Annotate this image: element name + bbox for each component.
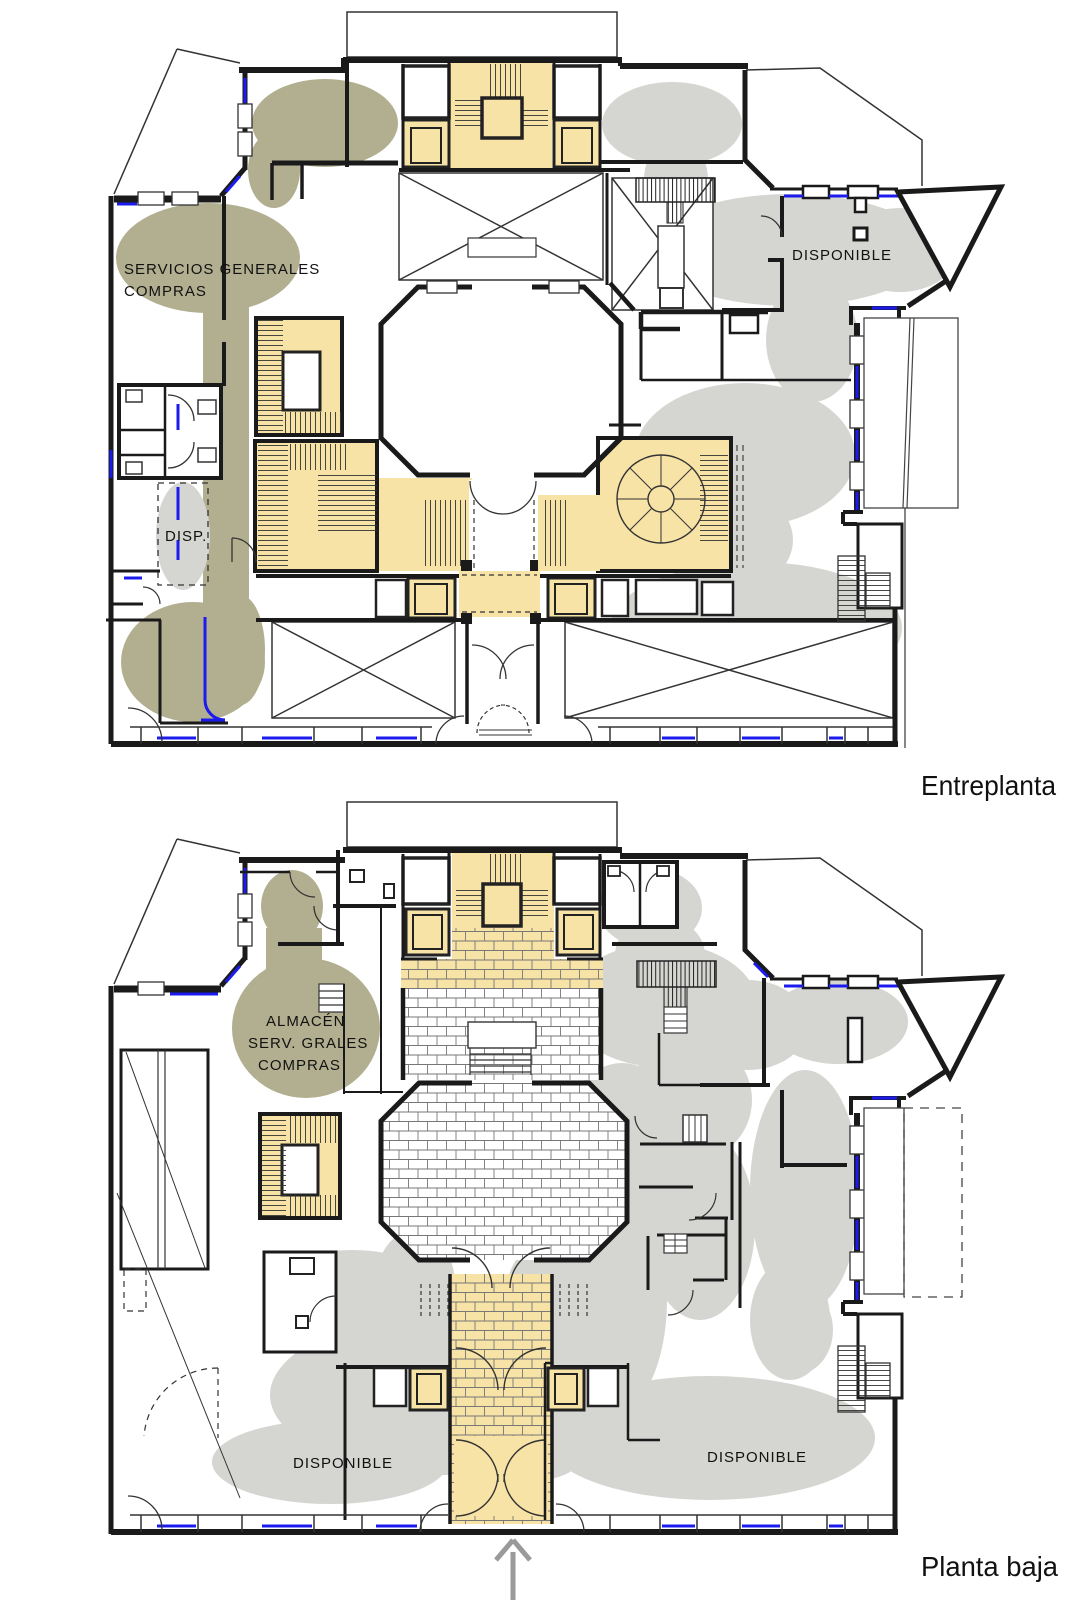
svg-text:COMPRAS: COMPRAS [124, 283, 207, 300]
svg-text:SERVICIOS GENERALES: SERVICIOS GENERALES [124, 261, 320, 278]
svg-text:SERV. GRALES: SERV. GRALES [248, 1035, 368, 1052]
svg-text:DISPONIBLE: DISPONIBLE [792, 247, 892, 264]
svg-text:DISPONIBLE: DISPONIBLE [293, 1455, 393, 1472]
svg-text:DISP.: DISP. [165, 528, 207, 545]
svg-text:ALMACÉN: ALMACÉN [266, 1013, 346, 1030]
svg-text:Entreplanta: Entreplanta [921, 770, 1056, 801]
svg-text:COMPRAS: COMPRAS [258, 1057, 341, 1074]
svg-text:Planta baja: Planta baja [921, 1551, 1058, 1582]
svg-text:DISPONIBLE: DISPONIBLE [707, 1449, 807, 1466]
